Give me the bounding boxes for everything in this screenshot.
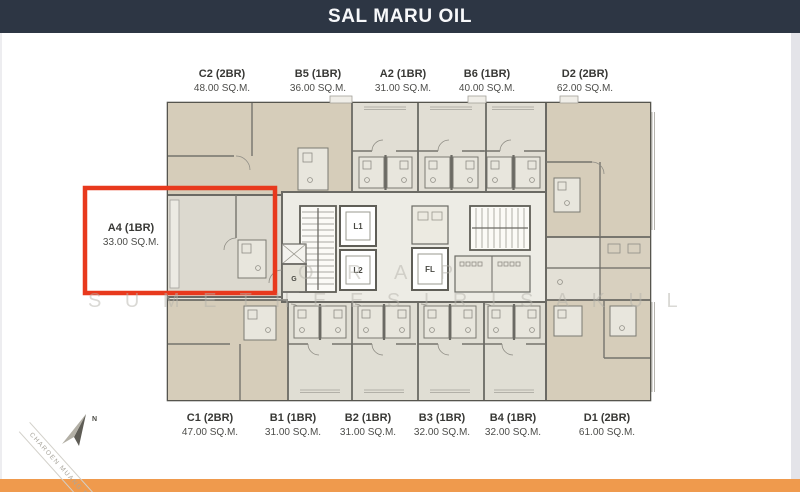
compass-icon: N bbox=[62, 414, 97, 446]
garbage-room-label: G bbox=[291, 276, 297, 283]
floor-plan-page: SAL MARU OIL bbox=[0, 0, 800, 492]
unit-label-b5: B5 (1BR) 36.00 SQ.M. bbox=[290, 68, 346, 96]
right-page-gutter bbox=[791, 33, 800, 479]
unit-label-b6: B6 (1BR) 40.00 SQ.M. bbox=[459, 68, 515, 96]
elevator-l1-label: L1 bbox=[353, 222, 363, 231]
unit-label-b3: B3 (1BR) 32.00 SQ.M. bbox=[414, 412, 470, 440]
unit-label-b2: B2 (1BR) 31.00 SQ.M. bbox=[340, 412, 396, 440]
unit-label-d1: D1 (2BR) 61.00 SQ.M. bbox=[579, 412, 635, 440]
unit-label-b1: B1 (1BR) 31.00 SQ.M. bbox=[265, 412, 321, 440]
unit-label-c2: C2 (2BR) 48.00 SQ.M. bbox=[194, 68, 250, 96]
unit-label-a2: A2 (1BR) 31.00 SQ.M. bbox=[375, 68, 431, 96]
left-page-gutter bbox=[0, 33, 2, 479]
compass-north-label: N bbox=[92, 416, 97, 423]
unit-label-a4-highlighted: A4 (1BR) 33.00 SQ.M. bbox=[103, 222, 159, 250]
footer-accent-bar bbox=[0, 479, 800, 492]
watermark-text-line2: S U M E T H E E S I R I S A K U L bbox=[88, 290, 687, 313]
unit-label-b4: B4 (1BR) 32.00 SQ.M. bbox=[485, 412, 541, 440]
watermark-text-line1: O R A P bbox=[298, 262, 467, 285]
unit-label-c1: C1 (2BR) 47.00 SQ.M. bbox=[182, 412, 238, 440]
unit-label-d2: D2 (2BR) 62.00 SQ.M. bbox=[557, 68, 613, 96]
